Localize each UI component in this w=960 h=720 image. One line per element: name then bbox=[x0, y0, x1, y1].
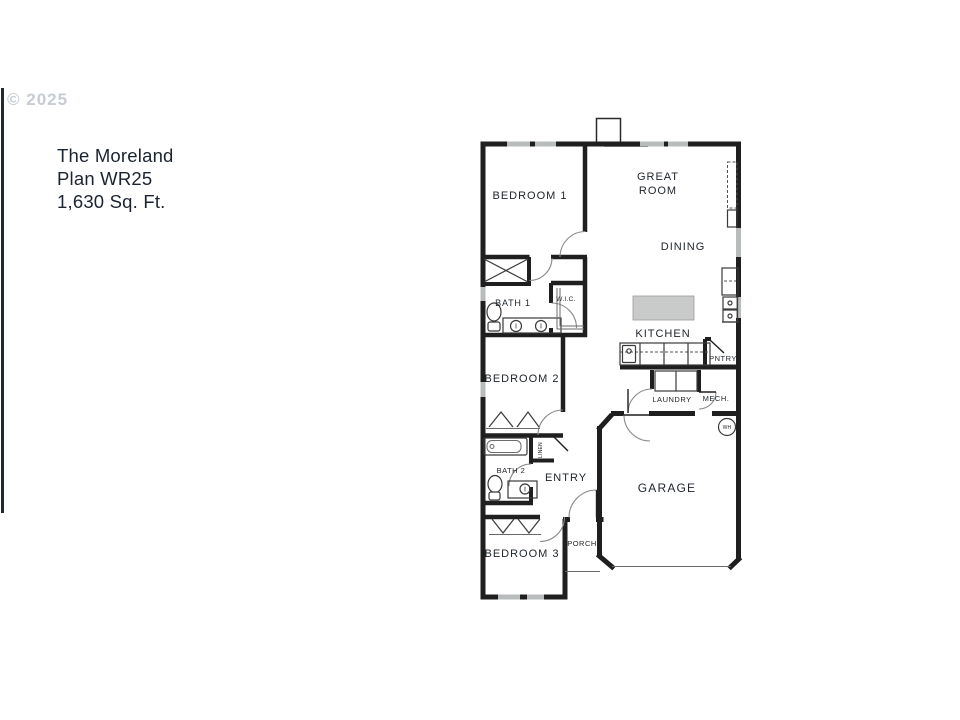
room-label-dining: DINING bbox=[661, 241, 706, 253]
garage-entry-door-arc bbox=[624, 415, 650, 441]
plan-sqft: 1,630 Sq. Ft. bbox=[57, 190, 174, 213]
room-label-laundry: LAUNDRY bbox=[652, 395, 691, 404]
room-label-garage: GARAGE bbox=[638, 481, 697, 495]
bedroom1-door-arc bbox=[560, 232, 586, 258]
laundry-door-arc bbox=[628, 389, 652, 413]
bath2-toilet bbox=[488, 476, 502, 493]
room-label-pantry: PNTRY bbox=[709, 354, 737, 363]
cabinet bbox=[728, 210, 738, 227]
room-label-mech: MECH. bbox=[703, 394, 730, 403]
room-label-kitchen: KITCHEN bbox=[635, 328, 690, 340]
bathtub bbox=[484, 438, 527, 455]
room-label-wic: W.I.C. bbox=[556, 296, 576, 303]
bath1-toilet-tank bbox=[488, 322, 500, 331]
kitchen-island bbox=[633, 296, 694, 320]
floor-plan: WH BEDROOM 1 bbox=[476, 110, 746, 606]
linen-door-leaf bbox=[554, 437, 568, 451]
bath2-toilet-tank bbox=[489, 492, 500, 500]
room-label-bath2: BATH 2 bbox=[497, 466, 526, 475]
left-border-line bbox=[1, 88, 4, 513]
copyright-watermark: © 2025 bbox=[7, 90, 68, 110]
room-label-entry: ENTRY bbox=[545, 472, 587, 484]
front-door-arc bbox=[569, 490, 597, 518]
bedroom2-closet-doors bbox=[486, 412, 540, 429]
kitchen-counter bbox=[620, 343, 710, 365]
exterior-walls bbox=[481, 142, 741, 600]
room-label-bedroom3: BEDROOM 3 bbox=[484, 548, 559, 560]
plan-title-block: The Moreland Plan WR25 1,630 Sq. Ft. bbox=[57, 144, 174, 213]
room-label-bedroom1: BEDROOM 1 bbox=[492, 190, 567, 202]
doors bbox=[509, 232, 724, 542]
room-label-great-room-line2: ROOM bbox=[639, 185, 677, 197]
room-label-porch: PORCH bbox=[567, 539, 597, 548]
chimney-bump bbox=[597, 119, 621, 144]
room-label-linen: LINEN bbox=[538, 442, 544, 458]
plan-number: Plan WR25 bbox=[57, 167, 174, 190]
fixtures: WH bbox=[484, 162, 738, 535]
range bbox=[723, 297, 738, 322]
washer-dryer bbox=[655, 371, 697, 391]
water-heater: WH bbox=[719, 419, 736, 436]
shower bbox=[484, 259, 528, 282]
plan-name: The Moreland bbox=[57, 144, 174, 167]
room-label-great-room-line1: GREAT bbox=[637, 171, 679, 183]
room-label-bedroom2: BEDROOM 2 bbox=[484, 373, 559, 385]
kitchen-sink bbox=[623, 346, 636, 363]
wic-door-arc bbox=[552, 303, 577, 328]
water-heater-label: WH bbox=[723, 425, 732, 431]
bath1-door-arc bbox=[530, 258, 553, 281]
pantry-door-leaf bbox=[710, 340, 724, 353]
room-label-bath1: BATH 1 bbox=[495, 298, 531, 308]
bedroom3-closet-doors bbox=[489, 519, 541, 535]
media-niche bbox=[728, 162, 738, 208]
bedroom2-door-arc bbox=[538, 410, 563, 435]
bedroom3-door-arc bbox=[540, 517, 565, 542]
screenshot-canvas: © 2025 The Moreland Plan WR25 1,630 Sq. … bbox=[0, 0, 960, 720]
